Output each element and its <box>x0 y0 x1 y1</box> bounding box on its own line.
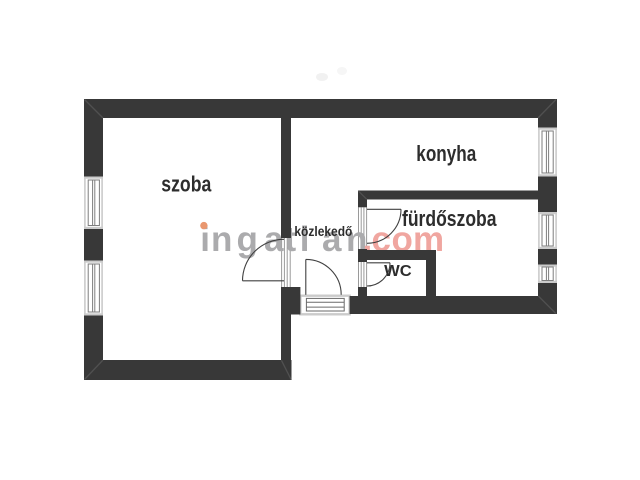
svg-text:WC: WC <box>384 263 412 280</box>
svg-text:konyha: konyha <box>416 141 477 166</box>
svg-text:közlekedő: közlekedő <box>294 223 352 239</box>
svg-text:fürdőszoba: fürdőszoba <box>402 206 497 231</box>
svg-text:szoba: szoba <box>161 171 212 196</box>
